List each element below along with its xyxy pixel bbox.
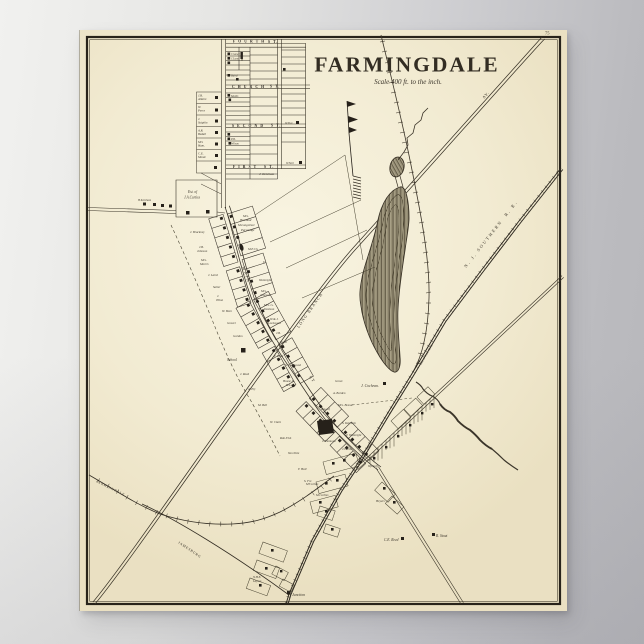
svg-text:Van Note: Van Note (288, 451, 300, 455)
svg-text:P.B.: P.B. (230, 137, 236, 141)
svg-text:Salter: Salter (213, 285, 221, 289)
svg-text:Baird: Baird (231, 74, 238, 78)
svg-text:C.E. Reed: C.E. Reed (384, 538, 399, 542)
svg-text:H.Ketcham: H.Ketcham (137, 198, 151, 202)
svg-text:Lockwood: Lockwood (267, 321, 281, 325)
svg-text:W.Tice: W.Tice (285, 121, 293, 125)
svg-text:F. Hall: F. Hall (297, 467, 307, 471)
svg-text:W. Clark: W. Clark (270, 420, 282, 424)
svg-text:75: 75 (545, 31, 550, 36)
svg-text:J.A.Curtiss: J.A.Curtiss (184, 196, 201, 200)
svg-text:M.Corlies: M.Corlies (315, 493, 329, 497)
svg-text:Bedall: Bedall (198, 132, 206, 136)
svg-text:T. Wainright: T. Wainright (346, 433, 361, 437)
svg-text:Rob.Fish: Rob.Fish (279, 436, 292, 440)
svg-text:R. Stout: R. Stout (435, 534, 448, 538)
svg-text:J. Laird: J. Laird (208, 273, 218, 277)
svg-text:M. Bell: M. Bell (257, 403, 267, 407)
svg-text:Mallis: Mallis (230, 94, 239, 98)
svg-text:C H U R C H: C H U R C H (232, 85, 265, 89)
svg-text:Budd: Budd (280, 340, 287, 344)
svg-text:J. Tilter: J. Tilter (274, 354, 284, 358)
svg-text:Gravel: Gravel (227, 321, 236, 325)
svg-text:FARMINGDALE: FARMINGDALE (96, 479, 126, 496)
svg-text:S T.: S T. (264, 165, 274, 169)
svg-text:Grove: Grove (335, 379, 343, 383)
svg-text:Row of: Row of (320, 407, 331, 411)
svg-text:S T.: S T. (268, 40, 278, 44)
svg-text:Wilson: Wilson (231, 142, 239, 146)
svg-text:S. Fre: S. Fre (304, 479, 312, 483)
svg-text:J. Ketcham: J. Ketcham (259, 172, 275, 176)
svg-text:Johnson: Johnson (260, 293, 271, 297)
svg-text:Gordon: Gordon (233, 334, 243, 338)
svg-text:Monte: Monte (197, 155, 207, 159)
svg-text:S T.: S T. (271, 124, 281, 128)
svg-text:Mrs. Brand: Mrs. Brand (337, 403, 353, 407)
svg-text:S T.: S T. (270, 85, 280, 89)
svg-text:A. Ely: A. Ely (247, 387, 256, 391)
svg-text:Davison: Davison (263, 307, 275, 311)
svg-text:M.Longstreet: M.Longstreet (237, 223, 255, 227)
svg-text:J. Brackney: J. Brackney (190, 230, 205, 234)
svg-text:FARMINGDALE: FARMINGDALE (314, 53, 499, 77)
svg-text:School: School (227, 358, 237, 362)
svg-text:Scale 400 ft. to the inch.: Scale 400 ft. to the inch. (374, 78, 442, 86)
svg-text:Johnson: Johnson (197, 249, 208, 253)
svg-text:A. Borden: A. Borden (332, 391, 346, 395)
svg-text:S. Ketchem: S. Ketchem (342, 421, 357, 425)
svg-text:S. Lockwood: S. Lockwood (285, 363, 301, 367)
svg-text:LONG BRANCH: LONG BRANCH (296, 292, 324, 329)
svg-text:J.Lane: J.Lane (231, 57, 240, 61)
svg-text:J. Emmons: J. Emmons (322, 439, 336, 443)
svg-text:Ham.: Ham. (197, 144, 205, 148)
svg-text:Wainright: Wainright (259, 278, 271, 282)
svg-text:J.B.: J.B. (276, 331, 281, 335)
svg-text:U.: U. (263, 260, 266, 264)
svg-text:Est. of: Est. of (187, 190, 198, 194)
svg-text:W. Born: W. Born (222, 309, 232, 313)
svg-text:F O U R T H: F O U R T H (233, 40, 265, 44)
svg-text:F I R S T: F I R S T (233, 165, 257, 169)
svg-text:Morris: Morris (199, 262, 209, 266)
svg-text:J. Cochran.: J. Cochran. (361, 384, 379, 388)
svg-text:Perry: Perry (197, 109, 206, 113)
svg-text:Heyers: Heyers (375, 499, 386, 503)
svg-text:Tilton: Tilton (216, 298, 224, 302)
svg-text:J.Curtis: J.Curtis (342, 447, 353, 451)
svg-text:JAMESBURG: JAMESBURG (177, 541, 202, 559)
svg-text:AV.: AV. (481, 90, 490, 100)
svg-text:ST: ST (308, 375, 317, 384)
svg-text:Sutphin: Sutphin (198, 121, 208, 125)
svg-text:Parsonage: Parsonage (240, 228, 255, 232)
svg-text:S E C O N D: S E C O N D (232, 124, 264, 128)
svg-text:M.E.Ch.: M.E.Ch. (247, 247, 259, 251)
svg-text:Howland: Howland (239, 218, 252, 222)
svg-text:Wyckoff: Wyckoff (368, 464, 379, 468)
svg-text:Layton: Layton (252, 579, 262, 583)
svg-text:H.L.: H.L. (285, 383, 292, 387)
svg-text:Allaire: Allaire (197, 97, 207, 101)
svg-text:Bank: Bank (240, 54, 244, 61)
svg-text:W.Neil: W.Neil (286, 161, 294, 165)
svg-text:J. Reed: J. Reed (240, 372, 250, 376)
svg-text:Junction: Junction (292, 593, 305, 597)
